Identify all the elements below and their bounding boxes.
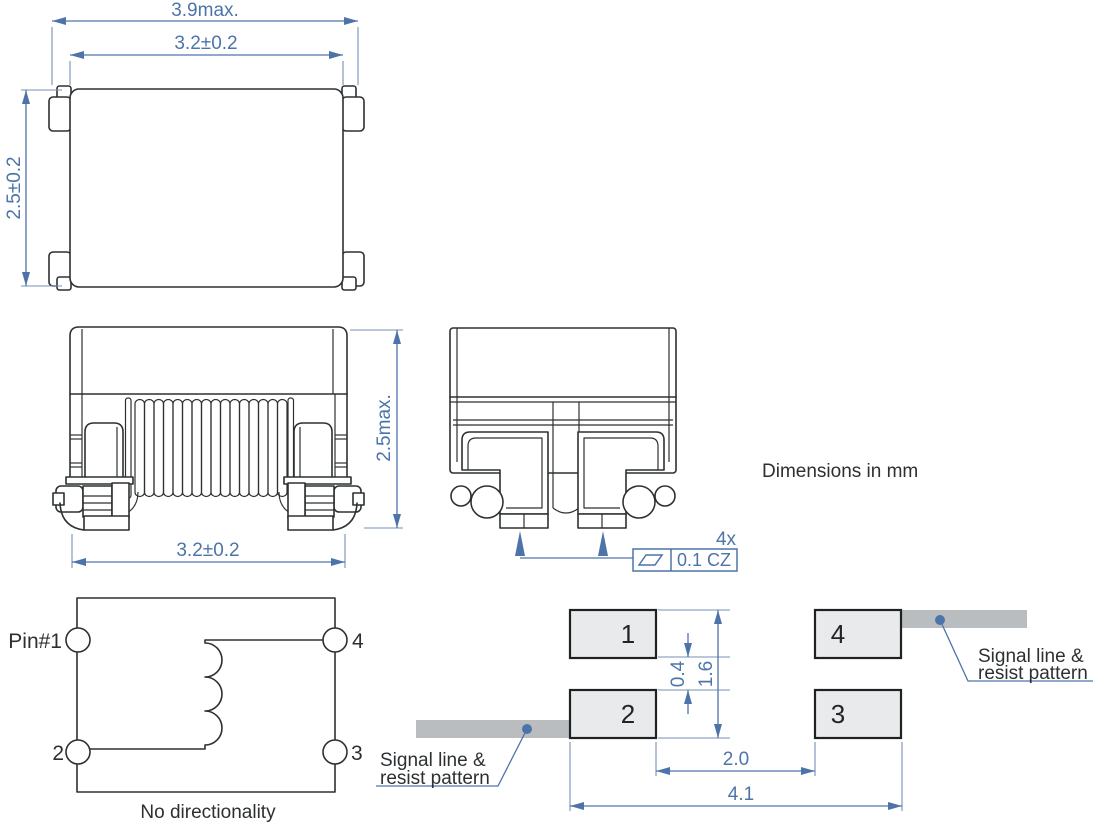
side-view: 4x 0.1 CZ: [450, 328, 737, 571]
land-dim-pad-gap-label: 0.4: [668, 660, 689, 687]
pad-2: [570, 690, 656, 738]
front-dim-height-label: 2.5max.: [374, 394, 395, 462]
land-dim-inner-span: 2.0: [656, 742, 815, 776]
schematic-pin2-label: 2: [52, 742, 64, 765]
dim-body-width-label: 3.2±0.2: [174, 33, 237, 54]
pad-3-label: 3: [831, 699, 845, 729]
front-view-coil-winding: [126, 398, 294, 498]
dim-body-height-label: 2.5±0.2: [4, 156, 25, 219]
signal-trace-left: [416, 720, 570, 738]
pad-4-label: 4: [831, 619, 845, 649]
front-view-left-flange: [70, 394, 123, 478]
front-dim-width-label: 3.2±0.2: [176, 540, 239, 561]
land-dim-pad-span: 1.6: [696, 610, 718, 738]
land-dim-inner-span-label: 2.0: [723, 749, 749, 770]
side-view-left-terminal: [451, 432, 548, 528]
front-view-right-terminal: [284, 477, 364, 530]
schematic-outline: [77, 598, 335, 792]
schematic-pin1-label: Pin#1: [8, 630, 62, 653]
callout-arrow-right: [598, 531, 608, 556]
front-view: 2.5max. 3.2±0.2: [53, 327, 403, 568]
schematic-pin1-terminal: [66, 628, 90, 652]
schematic-pin4-label: 4: [352, 630, 364, 653]
pad-4: [815, 610, 901, 658]
front-view-right-flange: [294, 394, 347, 478]
schematic-pin3-label: 3: [351, 742, 363, 765]
callout-arrow-left: [515, 531, 525, 556]
pad-2-label: 2: [621, 699, 635, 729]
top-view-body: [70, 89, 343, 287]
dim-overall-width-label: 3.9max.: [171, 0, 239, 21]
land-pattern: 1 2 4 3 Signal line & resist pattern Sig…: [376, 610, 1093, 811]
units-note: Dimensions in mm: [762, 461, 918, 482]
land-dim-outer-span-label: 4.1: [728, 784, 754, 805]
top-view: 3.9max. 3.2±0.2 2.5±0.2: [4, 0, 364, 290]
pad-1: [570, 610, 656, 658]
signal-trace-right: [901, 610, 1027, 628]
pad-3: [815, 690, 901, 738]
front-view-left-terminal: [53, 477, 133, 530]
technical-drawing-page: 3.9max. 3.2±0.2 2.5±0.2: [0, 0, 1096, 823]
flatness-qty-label: 4x: [716, 529, 737, 550]
schematic-pin3-terminal: [323, 740, 347, 764]
pad-1-label: 1: [621, 619, 635, 649]
flatness-callout: 4x 0.1 CZ: [515, 529, 737, 571]
schematic-pin2-terminal: [66, 740, 90, 764]
side-view-right-terminal: [578, 432, 675, 528]
land-dim-pad-span-label: 1.6: [696, 661, 717, 687]
top-view-dim-body-width: 3.2±0.2: [70, 33, 343, 85]
signal-callout-left-line2: resist pattern: [380, 768, 490, 789]
flatness-tolerance-label: 0.1 CZ: [677, 550, 731, 570]
front-view-cap: [70, 327, 347, 394]
front-view-dim-width: 3.2±0.2: [72, 534, 345, 568]
signal-callout-right-line2: resist pattern: [978, 663, 1088, 684]
schematic-pin4-terminal: [323, 628, 347, 652]
land-dim-pad-gap: 0.4: [658, 610, 730, 738]
schematic-note: No directionality: [140, 802, 276, 823]
schematic-coil: [90, 640, 324, 749]
schematic: Pin#1 4 2 3 No directionality: [8, 598, 364, 823]
